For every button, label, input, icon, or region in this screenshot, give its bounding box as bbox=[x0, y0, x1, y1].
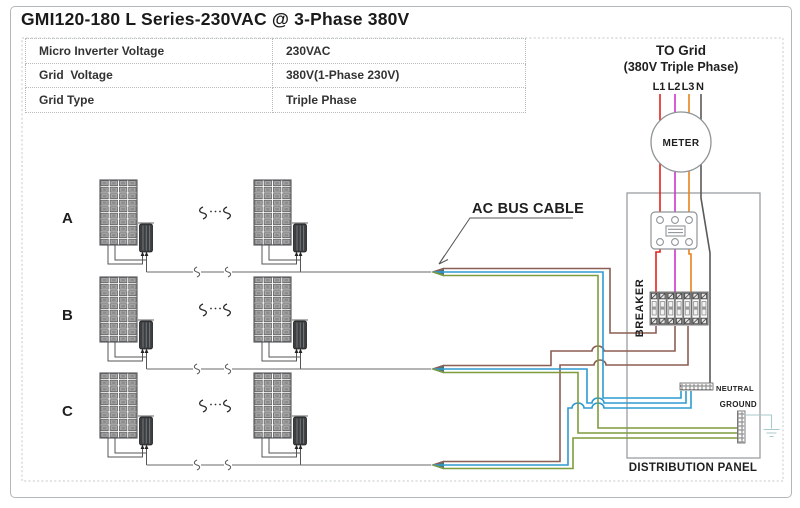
line-break-icon bbox=[225, 460, 230, 470]
pv-string-row-c: C bbox=[62, 373, 431, 470]
solar-panel-with-microinverter bbox=[100, 180, 154, 272]
leader-arrowhead-icon bbox=[439, 256, 448, 265]
energy-meter: METER bbox=[651, 112, 711, 172]
earth-ground-icon bbox=[764, 430, 780, 437]
continuation-squiggle-icon bbox=[200, 400, 207, 412]
breaker-label: BREAKER bbox=[634, 279, 646, 338]
continuation-squiggle-icon bbox=[224, 304, 231, 316]
solar-panel-with-microinverter bbox=[254, 373, 308, 465]
grid-voltage-label: (380V Triple Phase) bbox=[624, 60, 739, 74]
wiring-diagram: DISTRIBUTION PANEL A B C bbox=[0, 0, 800, 508]
phase-label-l1: L1 bbox=[653, 81, 666, 93]
ground-label: GROUND bbox=[720, 400, 757, 409]
breaker-strip: BREAKER bbox=[634, 279, 708, 338]
row-a-label: A bbox=[62, 210, 73, 227]
line-break-icon bbox=[194, 364, 199, 374]
phase-labels: L1 L2 L3 N bbox=[653, 81, 704, 93]
continuation-squiggle-icon bbox=[224, 207, 231, 219]
meter-label: METER bbox=[663, 138, 700, 149]
continuation-squiggle-icon bbox=[224, 400, 231, 412]
phase-label-n: N bbox=[696, 81, 704, 93]
neutral-label: NEUTRAL bbox=[716, 384, 754, 393]
to-grid-label: TO Grid bbox=[656, 43, 706, 58]
phase-l1-wire bbox=[656, 246, 660, 293]
line-break-icon bbox=[194, 460, 199, 470]
solar-panel-with-microinverter bbox=[254, 180, 308, 272]
solar-panel-with-microinverter bbox=[254, 277, 308, 369]
line-break-icon bbox=[225, 364, 230, 374]
phase-l3-wire bbox=[689, 246, 691, 293]
continuation-squiggle-icon bbox=[200, 304, 207, 316]
phase-label-l2: L2 bbox=[668, 81, 681, 93]
main-breaker bbox=[651, 212, 697, 249]
solar-panel-with-microinverter bbox=[100, 277, 154, 369]
row-c-label: C bbox=[62, 403, 73, 420]
distribution-panel-label: DISTRIBUTION PANEL bbox=[629, 462, 758, 474]
pv-string-row-b: B bbox=[62, 277, 431, 374]
continuation-squiggle-icon bbox=[200, 207, 207, 219]
phase-label-l3: L3 bbox=[682, 81, 695, 93]
row-b-label: B bbox=[62, 307, 73, 324]
ac-bus-cable-label: AC BUS CABLE bbox=[472, 201, 584, 217]
earth-connection bbox=[745, 415, 780, 437]
ac-bus-cable-callout: AC BUS CABLE bbox=[439, 201, 584, 264]
solar-panel-with-microinverter bbox=[100, 373, 154, 465]
line-break-icon bbox=[194, 267, 199, 277]
ground-bus-bar: GROUND bbox=[720, 400, 780, 443]
line-break-icon bbox=[225, 267, 230, 277]
pv-string-row-a: A bbox=[62, 180, 431, 277]
